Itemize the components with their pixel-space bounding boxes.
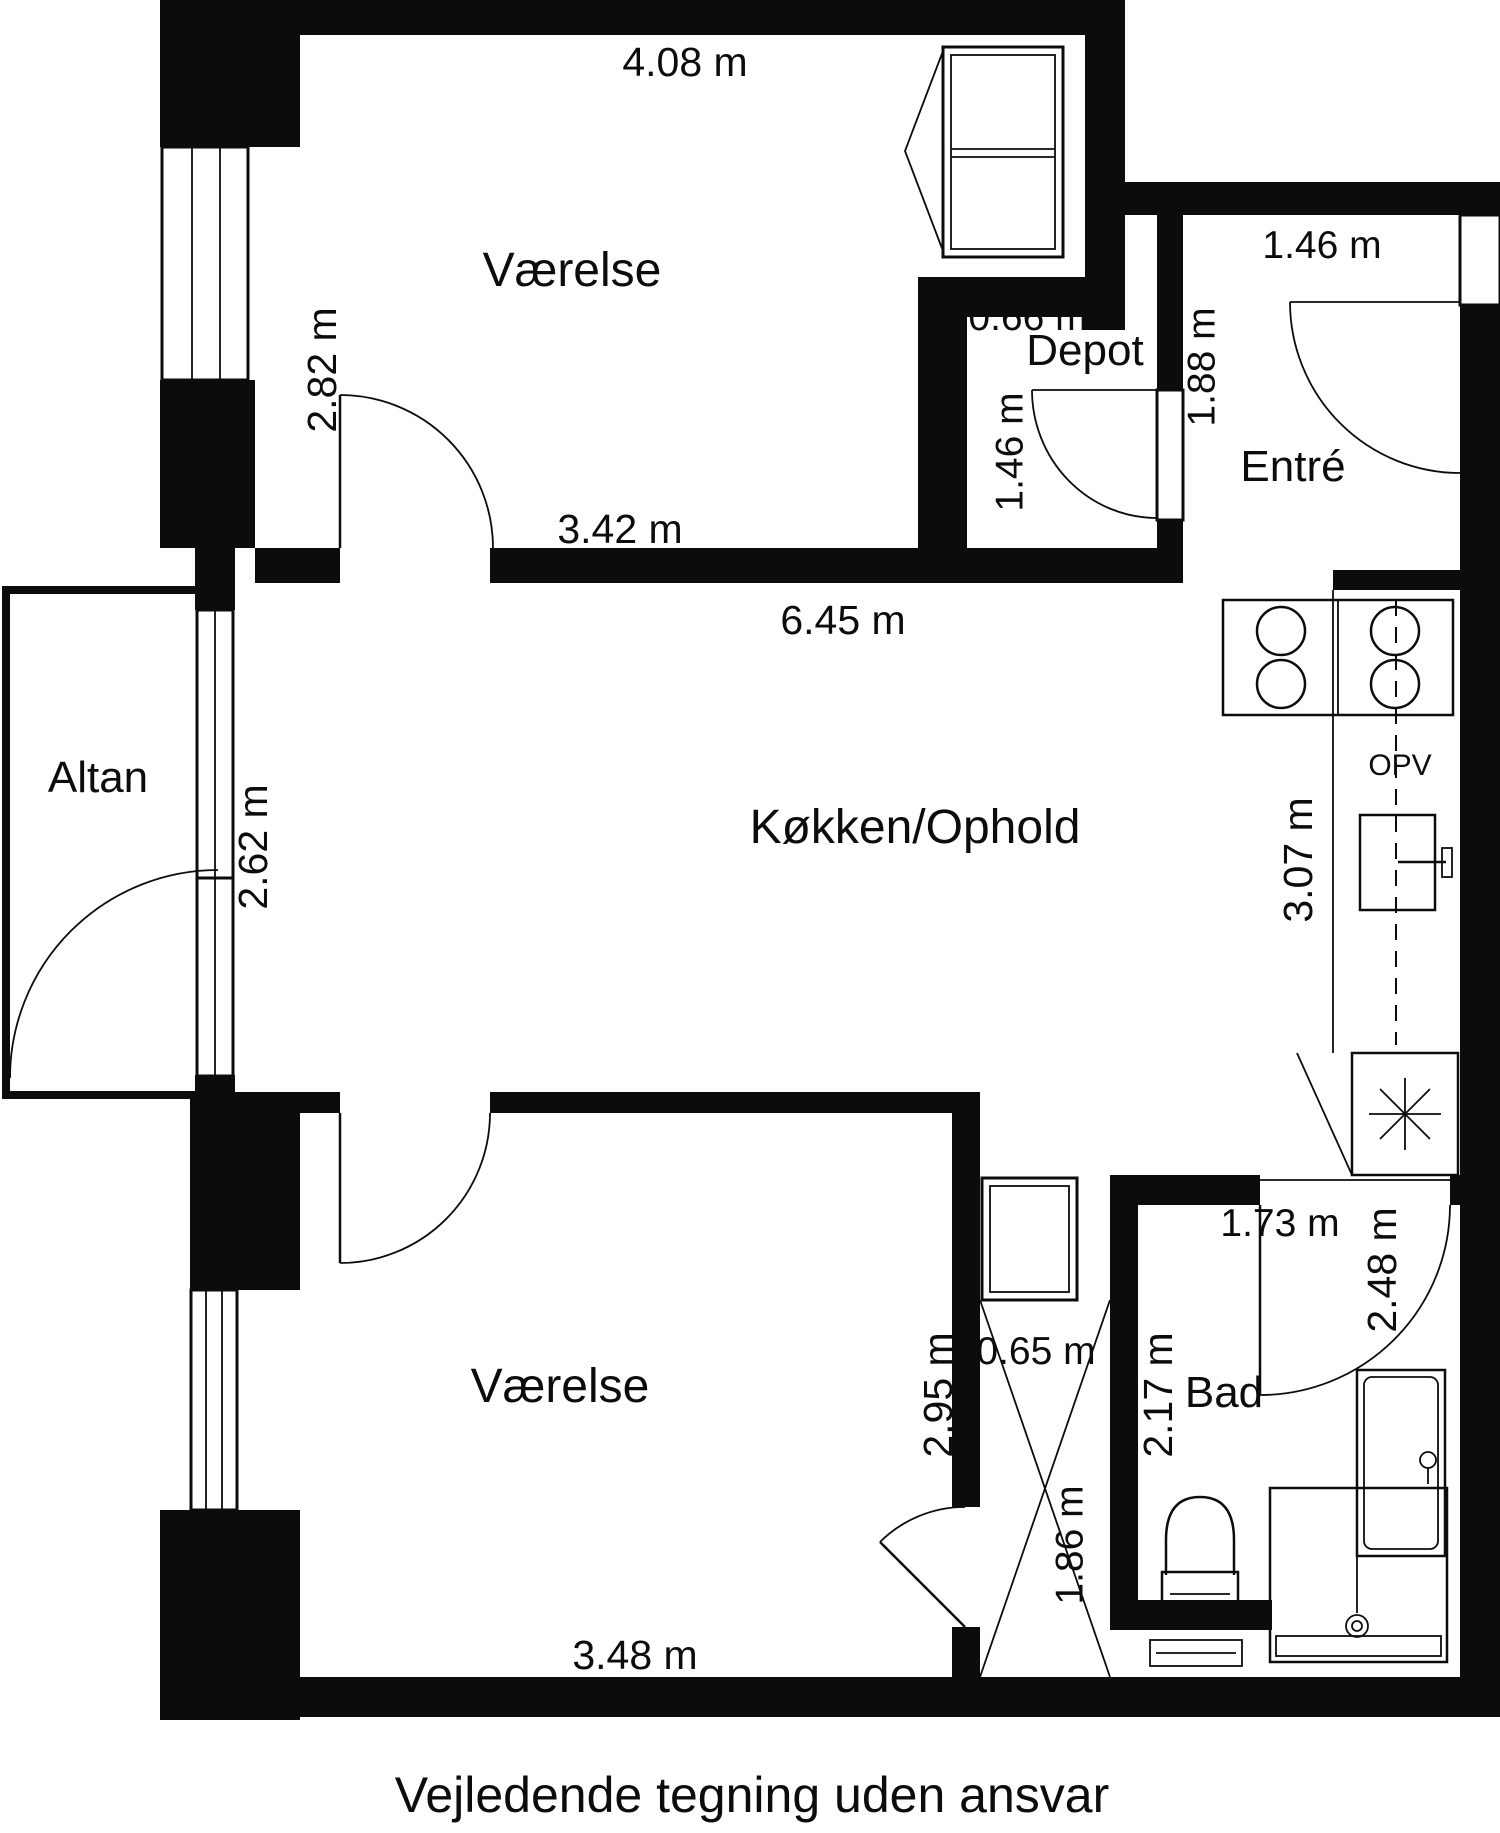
dim-vaerelse-bottom-width: 3.48 m [572, 1632, 697, 1678]
wall-top-left-corner [160, 0, 300, 147]
wall-left-mid [195, 548, 235, 610]
room-label-altan: Altan [48, 753, 148, 802]
shower-icon [1270, 1488, 1447, 1662]
wall-depot-entre-a [1157, 208, 1183, 390]
wall-bad-left [1110, 1175, 1138, 1620]
door-balcony-swing [10, 870, 218, 1078]
balcony-door-panel [197, 878, 233, 1076]
door-vaerelse-bottom-top [340, 1113, 490, 1263]
wall-top [160, 0, 1115, 35]
footer-disclaimer: Vejledende tegning uden ansvar [395, 1767, 1109, 1823]
wall-left-below-window [160, 380, 255, 548]
wall-lower-room-right-b [952, 1627, 980, 1677]
wall-depot-entre-b [1157, 520, 1183, 583]
door-vaerelse-bottom-side [880, 1507, 965, 1627]
dim-balcony-door-height: 2.62 m [230, 784, 276, 909]
dim-bad-height: 2.48 m [1359, 1207, 1405, 1332]
dim-bad-inner-height: 2.17 m [1135, 1332, 1181, 1457]
fridge-icon [1297, 1053, 1458, 1175]
dim-entre-width: 1.46 m [1262, 224, 1381, 267]
toilet-icon [1162, 1497, 1238, 1602]
wall-lower-left-corner [190, 1092, 300, 1290]
dim-bad-width: 1.73 m [1220, 1202, 1339, 1245]
dim-shaft-width: 0.65 m [976, 1330, 1095, 1373]
wall-divider-left [255, 548, 340, 583]
door-depot [1032, 390, 1183, 520]
dim-vaerelse-top-height: 2.82 m [299, 307, 345, 432]
wall-bad-bottom-left [1110, 1600, 1272, 1630]
dim-kitchen-counter-height: 3.07 m [1275, 797, 1321, 922]
cabinet-icon [982, 1178, 1077, 1300]
dim-vaerelse-bottom-height: 2.95 m [915, 1332, 961, 1457]
wall-right [1460, 305, 1500, 1677]
room-label-vaerelse-top: Værelse [483, 244, 662, 297]
sink-icon [1360, 815, 1452, 910]
window-icon [197, 610, 233, 878]
room-label-bad: Bad [1185, 1368, 1263, 1417]
dim-vaerelse-top-width: 4.08 m [622, 39, 747, 85]
washbasin-icon [1357, 1370, 1445, 1556]
floor-plan: Værelse 4.08 m 2.82 m 3.42 m 0.66 m Depo… [0, 0, 1500, 1833]
dim-vaerelse-top-inner-width: 3.42 m [557, 506, 682, 552]
wall-entre-top [1085, 182, 1500, 215]
radiator-icon [1150, 1640, 1242, 1666]
dim-kitchen-width: 6.45 m [780, 597, 905, 643]
wall-lower-room-top-a [300, 1092, 340, 1113]
wall-depot-left [918, 317, 967, 583]
stove-icon [1223, 600, 1453, 715]
dim-depot-height: 1.46 m [989, 392, 1032, 511]
wall-divider-right [490, 548, 1180, 583]
wardrobe-icon [905, 47, 1063, 257]
label-opv: OPV [1368, 749, 1431, 782]
room-label-kitchen: Køkken/Ophold [750, 801, 1081, 854]
room-label-vaerelse-bottom: Værelse [471, 1360, 650, 1413]
kitchen-counter [1333, 590, 1396, 1053]
balcony-outline [6, 590, 197, 1095]
window-icon [162, 147, 248, 380]
dim-entre-height: 1.88 m [1181, 307, 1224, 426]
wall-bottom [160, 1677, 1500, 1717]
dim-shaft-height: 1.86 m [1049, 1485, 1092, 1604]
wall-lower-room-top-b [490, 1092, 980, 1113]
window-icon [191, 1290, 237, 1510]
door-vaerelse-top [340, 395, 493, 548]
room-label-entre: Entré [1240, 442, 1345, 491]
wall-bad-top-left [1110, 1175, 1260, 1205]
wall-entre-counter [1333, 570, 1460, 590]
room-label-depot: Depot [1026, 326, 1143, 375]
